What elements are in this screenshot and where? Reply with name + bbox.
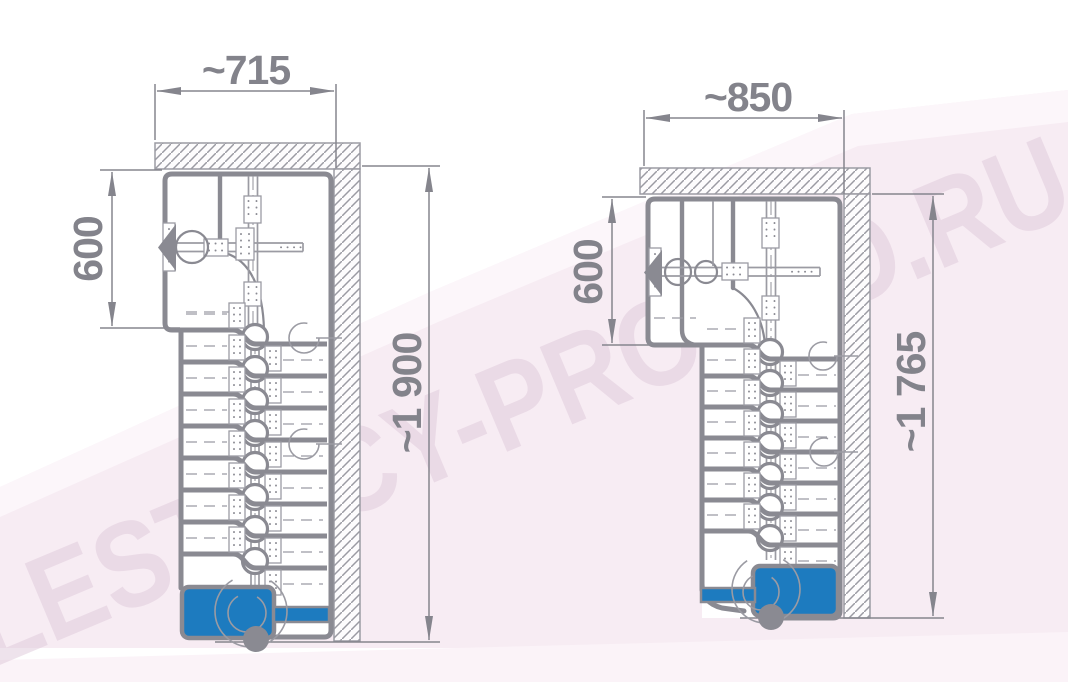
- dim-depth-label-right: 600: [565, 239, 611, 305]
- wall-right-right-drawing: [844, 194, 870, 618]
- dim-width-label-left: ~715: [202, 47, 291, 93]
- wall-right-left-drawing: [334, 169, 360, 641]
- blueprint-canvas: LESTNICY-PROSTO.RU ~715 600 ~1 900: [0, 0, 1068, 682]
- wall-top-left-drawing: [155, 143, 360, 169]
- landing-strip: [274, 607, 329, 622]
- center-post-icon: [243, 626, 269, 652]
- center-post-icon: [758, 604, 784, 630]
- dim-width-label-right: ~850: [704, 74, 793, 120]
- landing-strip: [701, 588, 755, 602]
- dim-height-label-left: ~1 900: [384, 333, 430, 454]
- staircase-diagram: LESTNICY-PROSTO.RU ~715 600 ~1 900: [0, 0, 1068, 682]
- dim-height-label-right: ~1 765: [888, 332, 934, 453]
- dim-depth-label-left: 600: [65, 216, 111, 282]
- wall-top-right-drawing: [640, 168, 870, 194]
